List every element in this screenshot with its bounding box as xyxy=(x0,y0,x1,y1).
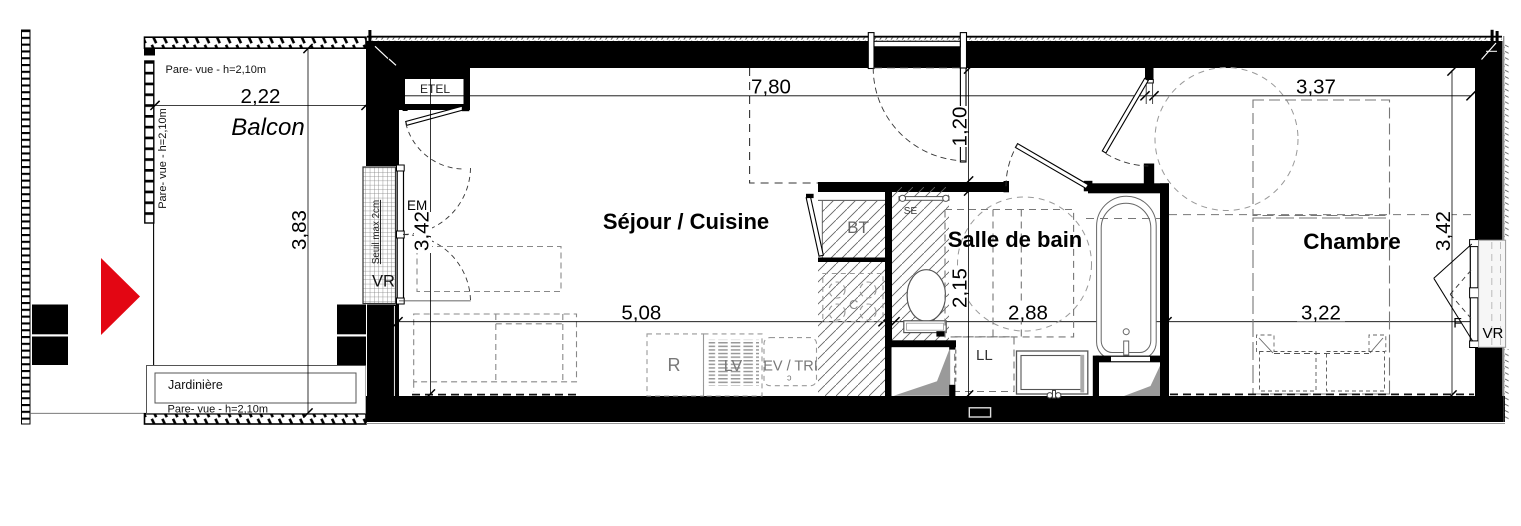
svg-text:2,15: 2,15 xyxy=(949,268,972,308)
svg-text:Pare- vue - h=2,10m: Pare- vue - h=2,10m xyxy=(157,108,169,209)
svg-text:ETEL: ETEL xyxy=(420,82,450,96)
svg-text:3,42: 3,42 xyxy=(410,211,433,251)
svg-text:3,22: 3,22 xyxy=(1301,302,1341,325)
svg-text:R: R xyxy=(668,355,681,375)
svg-text:BT: BT xyxy=(847,218,869,237)
svg-text:F: F xyxy=(1453,315,1462,331)
svg-text:3,37: 3,37 xyxy=(1296,76,1336,99)
svg-text:SE: SE xyxy=(904,206,918,217)
svg-text:7,80: 7,80 xyxy=(751,76,791,99)
svg-text:VR: VR xyxy=(1483,325,1504,342)
svg-text:Balcon: Balcon xyxy=(231,114,304,141)
svg-text:EM: EM xyxy=(407,198,427,213)
svg-text:5,08: 5,08 xyxy=(621,302,661,325)
svg-text:Séjour / Cuisine: Séjour / Cuisine xyxy=(603,209,769,234)
svg-text:ɔ: ɔ xyxy=(787,373,792,383)
svg-text:1,20: 1,20 xyxy=(949,107,972,147)
svg-text:Pare- vue - h=2,10m: Pare- vue - h=2,10m xyxy=(168,404,269,416)
svg-text:LV: LV xyxy=(724,358,743,375)
svg-text:Chambre: Chambre xyxy=(1303,229,1401,254)
svg-text:VR: VR xyxy=(372,273,395,291)
svg-text:Pare- vue - h=2,10m: Pare- vue - h=2,10m xyxy=(166,64,267,76)
svg-text:2,88: 2,88 xyxy=(1008,302,1048,325)
svg-text:C: C xyxy=(849,297,858,312)
svg-text:2,22: 2,22 xyxy=(241,85,281,108)
svg-text:Seuil max 2cm: Seuil max 2cm xyxy=(371,200,382,264)
svg-text:LL: LL xyxy=(976,347,993,364)
svg-text:3,42: 3,42 xyxy=(1432,211,1455,251)
svg-text:Jardinière: Jardinière xyxy=(168,378,223,392)
svg-text:Salle de bain: Salle de bain xyxy=(948,227,1083,252)
svg-text:3,83: 3,83 xyxy=(288,210,311,250)
